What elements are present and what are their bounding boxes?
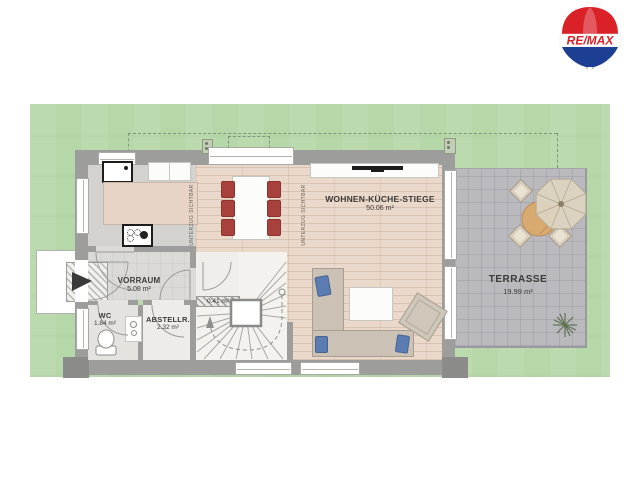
terrace-paving xyxy=(455,168,587,348)
pillar-bottom-left xyxy=(63,357,89,378)
remax-wordmark: RE/MAX xyxy=(567,34,615,48)
kitchen-island xyxy=(103,182,198,225)
room-name: VORRAUM xyxy=(118,276,161,286)
vent-chimney-2 xyxy=(444,138,456,154)
door-opening-stairs xyxy=(190,268,196,300)
room-name: WOHNEN-KÜCHE-STIEGE xyxy=(325,194,435,205)
window-terrace-door-lower xyxy=(444,266,457,340)
door-opening-wc xyxy=(98,300,128,305)
remax-logo: RE/MAX xyxy=(548,4,632,70)
coffee-table xyxy=(349,287,393,321)
door-opening-storage xyxy=(152,300,184,305)
room-label-wc: WC 1.84 m² xyxy=(94,311,116,329)
window-bottom-2 xyxy=(300,362,360,375)
window-wc-left xyxy=(76,308,89,350)
floor-stair-niche xyxy=(196,252,238,296)
room-label-main: WOHNEN-KÜCHE-STIEGE 50.06 m² xyxy=(325,194,435,213)
room-name: TERRASSE xyxy=(489,274,547,287)
room-label-storage: ABSTELLR. 2.32 m² xyxy=(146,315,190,333)
room-name: WC xyxy=(94,311,116,320)
kitchen-cabinet-1 xyxy=(148,162,170,181)
beam-note-1: UNTERZUG SICHTBAR xyxy=(189,184,195,245)
room-name: ABSTELLR. xyxy=(146,315,190,324)
window-kitchen-left xyxy=(76,178,89,234)
wall-stair-right xyxy=(287,322,293,360)
sofa-cushion xyxy=(315,336,328,353)
room-label-vorraum: VORRAUM 5.08 m² xyxy=(118,276,161,295)
pillar-bottom-right xyxy=(442,357,468,378)
dining-chair xyxy=(267,200,281,217)
roof-outline-dashed-top xyxy=(128,133,557,134)
room-area: 2.32 m² xyxy=(146,324,190,332)
washbasin xyxy=(125,316,142,342)
room-area: 50.06 m² xyxy=(325,205,435,214)
floor-storage xyxy=(143,305,190,360)
window-terrace-door-upper xyxy=(444,170,457,260)
sofa-cushion xyxy=(395,334,410,354)
room-label-terrace: TERRASSE 19.99 m² xyxy=(489,274,547,296)
kitchen-cabinet-2 xyxy=(169,162,191,181)
balloon-icon: RE/MAX xyxy=(560,7,620,69)
room-area: 19.99 m² xyxy=(489,287,547,296)
roof-outline-dashed-right xyxy=(557,133,558,168)
tv-stand xyxy=(371,170,384,172)
floor-plan: WOHNEN-KÜCHE-STIEGE 50.06 m² TERRASSE 19… xyxy=(0,0,640,480)
entrance-door-opening xyxy=(75,260,88,302)
kitchen-sink xyxy=(102,161,133,183)
stair-niche-area-label: 0.41 m² xyxy=(207,298,229,305)
room-area: 1.84 m² xyxy=(94,320,116,328)
dining-chair xyxy=(267,181,281,198)
dining-table xyxy=(232,176,270,240)
cooktop xyxy=(122,224,153,247)
dining-chair xyxy=(221,200,235,217)
window-bottom-1 xyxy=(235,362,292,375)
dining-chair xyxy=(221,219,235,236)
beam-note-2: UNTERZUG SICHTBAR xyxy=(301,184,307,245)
room-area: 5.08 m² xyxy=(118,286,161,295)
dining-chair xyxy=(221,181,235,198)
dining-chair xyxy=(267,219,281,236)
window-dining-top xyxy=(208,147,294,165)
